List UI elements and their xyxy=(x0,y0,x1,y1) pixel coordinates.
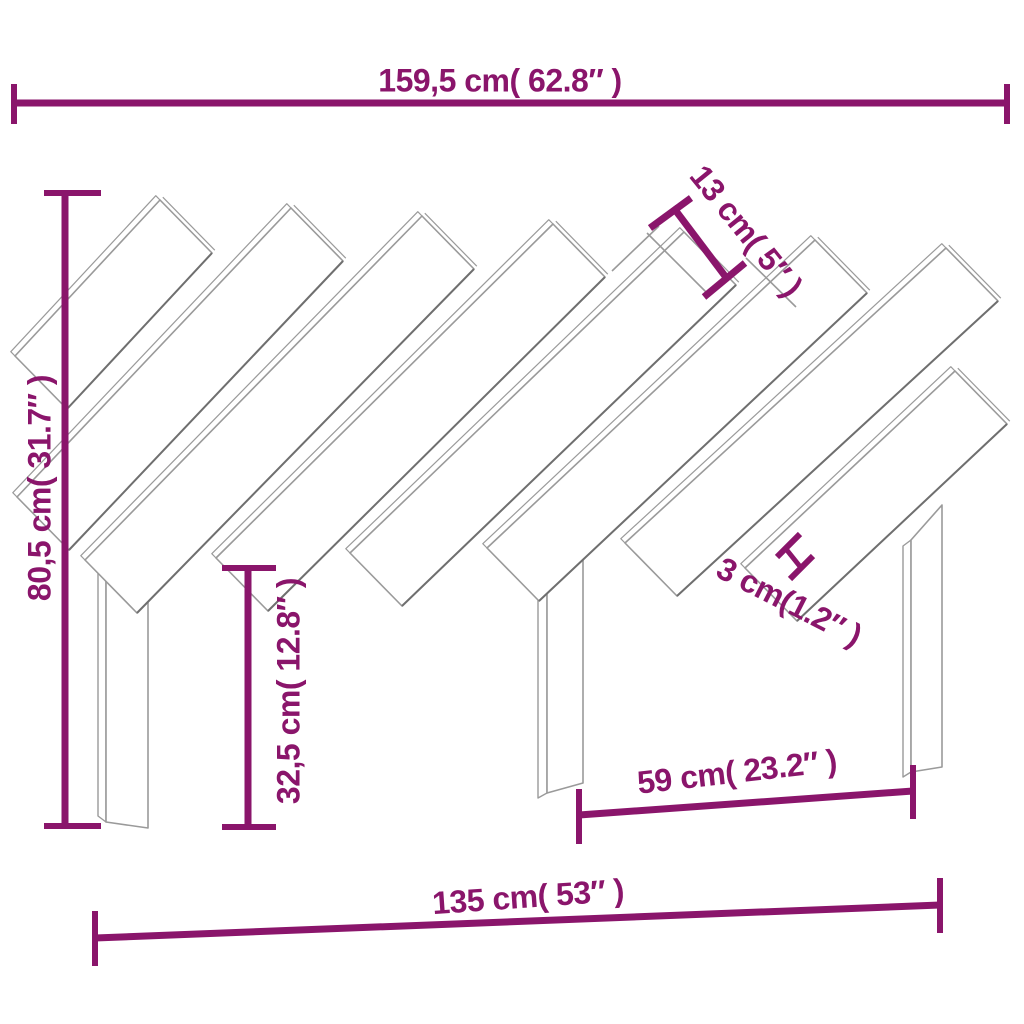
headboard-drawing xyxy=(0,0,1024,1024)
dim-leg-spacing-line xyxy=(579,791,913,815)
overall-height-label: 80,5 cm( 31.7″ ) xyxy=(22,375,59,601)
leg-left-side xyxy=(98,545,106,822)
leg-right-side xyxy=(903,540,911,777)
overall-width-label: 159,5 cm( 62.8″ ) xyxy=(378,63,621,100)
leg-right xyxy=(911,505,942,772)
leg-height-label: 32,5 cm( 12.8″ ) xyxy=(271,578,308,804)
dimension-diagram: 159,5 cm( 62.8″ ) 80,5 cm( 31.7″ ) 32,5 … xyxy=(0,0,1024,1024)
